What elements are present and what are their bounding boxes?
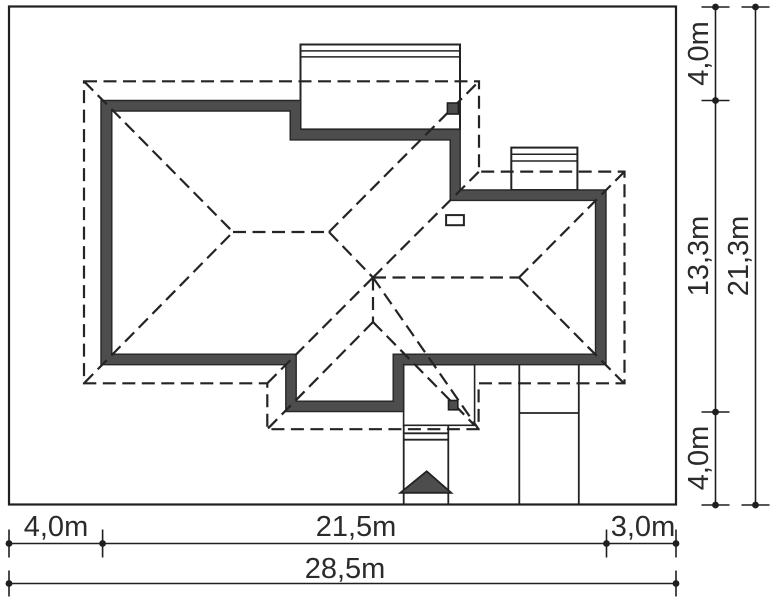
svg-text:13,3m: 13,3m [683,216,715,297]
svg-text:28,5m: 28,5m [305,553,386,585]
svg-text:3,0m: 3,0m [611,511,675,543]
svg-text:21,3m: 21,3m [723,216,755,297]
svg-text:4,0m: 4,0m [683,21,715,85]
svg-text:4,0m: 4,0m [683,426,715,490]
svg-text:21,5m: 21,5m [316,511,397,543]
svg-text:4,0m: 4,0m [24,511,88,543]
